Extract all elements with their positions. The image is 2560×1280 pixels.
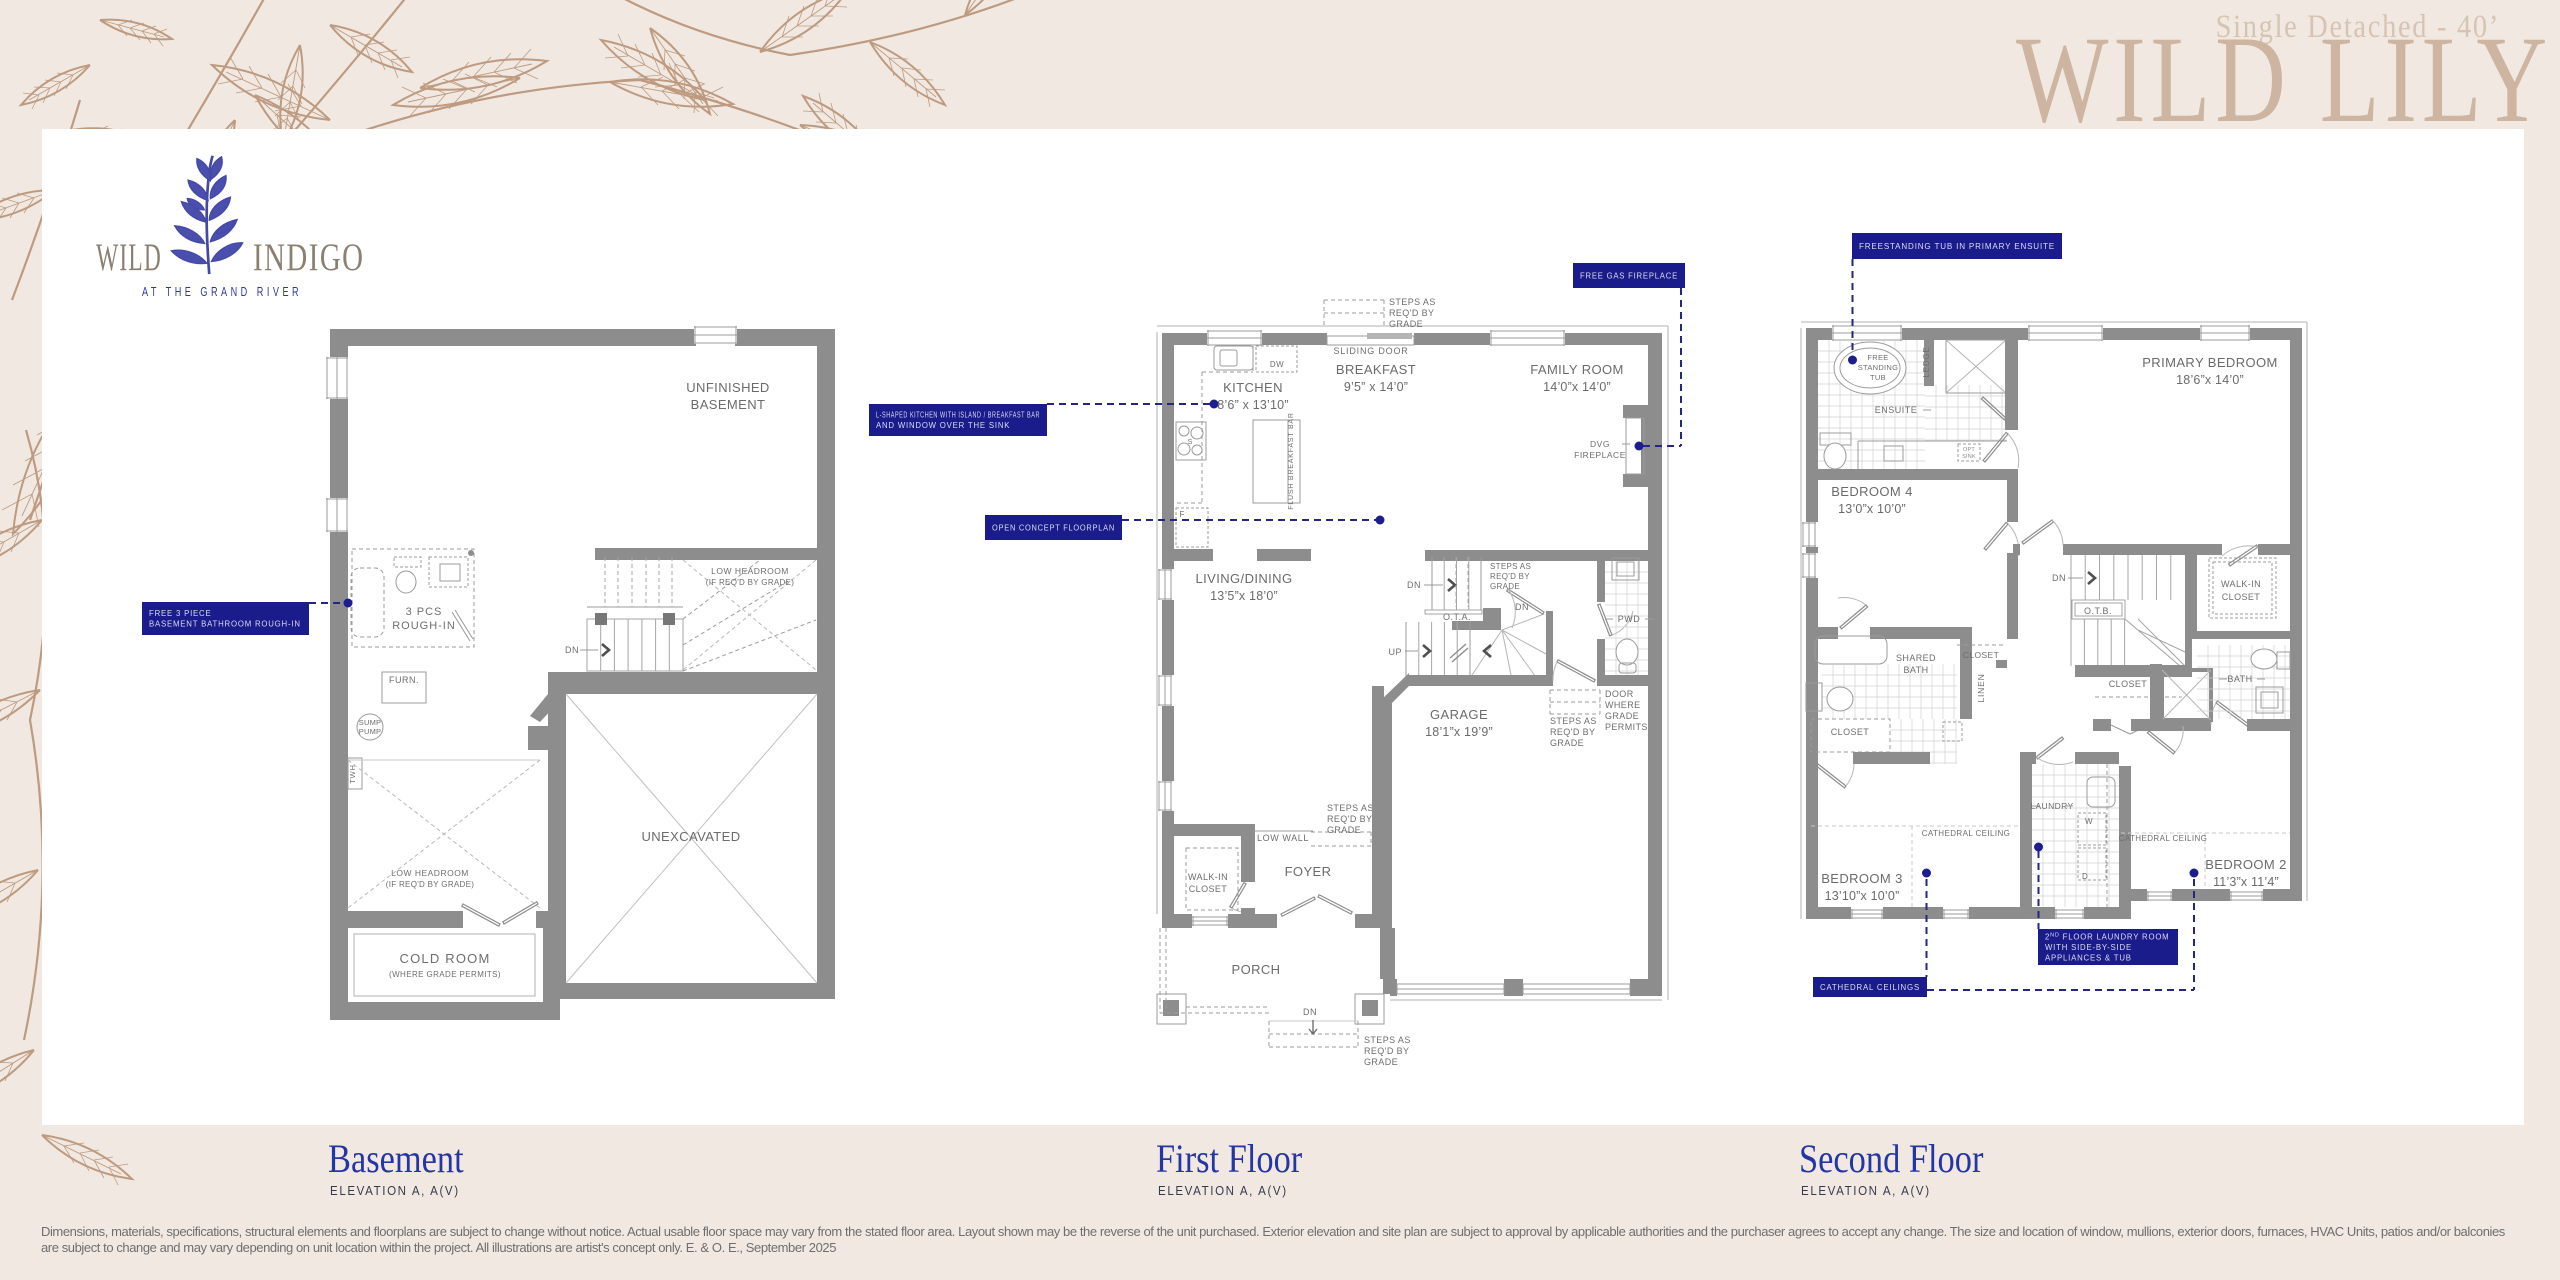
svg-text:FREE: FREE bbox=[1867, 353, 1888, 362]
svg-text:FREE GAS FIREPLACE: FREE GAS FIREPLACE bbox=[1580, 271, 1678, 280]
svg-text:DN: DN bbox=[1515, 602, 1529, 612]
svg-text:PRIMARY BEDROOM: PRIMARY BEDROOM bbox=[2142, 355, 2278, 370]
svg-text:DN: DN bbox=[1303, 1007, 1317, 1017]
svg-text:PORCH: PORCH bbox=[1232, 962, 1281, 977]
svg-text:PUMP: PUMP bbox=[359, 727, 381, 736]
svg-text:(IF REQ'D BY GRADE): (IF REQ'D BY GRADE) bbox=[386, 880, 474, 889]
svg-text:OPEN CONCEPT FLOORPLAN: OPEN CONCEPT FLOORPLAN bbox=[992, 523, 1115, 532]
svg-text:2ND FLOOR LAUNDRY ROOM: 2ND FLOOR LAUNDRY ROOM bbox=[2045, 932, 2169, 941]
svg-text:STANDING: STANDING bbox=[1858, 363, 1899, 372]
svg-text:LEDGE: LEDGE bbox=[1922, 346, 1931, 377]
svg-text:SUMP: SUMP bbox=[359, 718, 381, 727]
svg-text:KITCHEN: KITCHEN bbox=[1223, 380, 1283, 395]
svg-text:GRADE: GRADE bbox=[1490, 582, 1520, 591]
svg-text:BASEMENT BATHROOM ROUGH-IN: BASEMENT BATHROOM ROUGH-IN bbox=[149, 620, 301, 629]
svg-text:LOW HEADROOM: LOW HEADROOM bbox=[391, 868, 469, 878]
svg-text:CLOSET: CLOSET bbox=[2109, 679, 2148, 689]
svg-text:GRADE: GRADE bbox=[1550, 738, 1584, 748]
svg-text:W: W bbox=[2085, 817, 2093, 826]
svg-text:CATHEDRAL CEILING: CATHEDRAL CEILING bbox=[2119, 834, 2208, 843]
svg-text:UNFINISHED: UNFINISHED bbox=[686, 380, 769, 395]
svg-text:WALK-IN: WALK-IN bbox=[1188, 872, 1228, 882]
svg-text:13’0”x 10’0”: 13’0”x 10’0” bbox=[1838, 502, 1906, 516]
svg-text:FOYER: FOYER bbox=[1285, 864, 1332, 879]
svg-text:18’1”x 19’9”: 18’1”x 19’9” bbox=[1425, 725, 1493, 739]
svg-text:GRADE: GRADE bbox=[1605, 711, 1639, 721]
svg-text:REQ'D BY: REQ'D BY bbox=[1364, 1046, 1409, 1056]
svg-text:11’3”x 11’4”: 11’3”x 11’4” bbox=[2213, 875, 2279, 889]
svg-text:FIREPLACE: FIREPLACE bbox=[1574, 450, 1626, 460]
svg-text:(WHERE GRADE PERMITS): (WHERE GRADE PERMITS) bbox=[389, 970, 501, 979]
svg-text:DN: DN bbox=[1407, 580, 1421, 590]
svg-text:UP: UP bbox=[1388, 647, 1402, 657]
svg-text:GRADE: GRADE bbox=[1389, 319, 1423, 329]
svg-text:FAMILY ROOM: FAMILY ROOM bbox=[1530, 362, 1624, 377]
svg-text:GARAGE: GARAGE bbox=[1430, 707, 1488, 722]
svg-text:STEPS AS: STEPS AS bbox=[1389, 297, 1436, 307]
svg-text:STEPS AS: STEPS AS bbox=[1327, 803, 1374, 813]
svg-text:ENSUITE: ENSUITE bbox=[1875, 405, 1918, 415]
svg-text:O.T.B.: O.T.B. bbox=[2084, 606, 2112, 616]
svg-text:LOW HEADROOM: LOW HEADROOM bbox=[711, 566, 789, 576]
svg-text:FREESTANDING TUB IN PRIMARY EN: FREESTANDING TUB IN PRIMARY ENSUITE bbox=[1859, 242, 2055, 251]
svg-text:REQ'D BY: REQ'D BY bbox=[1490, 572, 1530, 581]
svg-text:9’5” x 14’0”: 9’5” x 14’0” bbox=[1344, 380, 1408, 394]
svg-text:13’5”x 18’0”: 13’5”x 18’0” bbox=[1210, 589, 1278, 603]
svg-text:DN: DN bbox=[565, 645, 579, 655]
svg-text:TWH: TWH bbox=[348, 764, 357, 783]
svg-text:D: D bbox=[2082, 872, 2088, 881]
svg-text:3 PCS: 3 PCS bbox=[406, 606, 443, 618]
svg-text:APPLIANCES & TUB: APPLIANCES & TUB bbox=[2045, 953, 2132, 962]
svg-text:GRADE: GRADE bbox=[1364, 1057, 1398, 1067]
svg-text:STEPS AS: STEPS AS bbox=[1490, 562, 1531, 571]
svg-text:CLOSET: CLOSET bbox=[1963, 650, 1999, 660]
svg-text:BEDROOM 2: BEDROOM 2 bbox=[2205, 857, 2287, 872]
svg-text:L-SHAPED KITCHEN WITH ISLAND /: L-SHAPED KITCHEN WITH ISLAND / BREAKFAST… bbox=[876, 411, 1040, 420]
svg-text:CATHEDRAL CEILING: CATHEDRAL CEILING bbox=[1922, 829, 2011, 838]
svg-text:WITH SIDE-BY-SIDE: WITH SIDE-BY-SIDE bbox=[2045, 943, 2132, 952]
svg-text:UNEXCAVATED: UNEXCAVATED bbox=[641, 829, 740, 844]
svg-text:DVG: DVG bbox=[1590, 439, 1610, 449]
svg-text:COLD ROOM: COLD ROOM bbox=[400, 951, 491, 966]
svg-text:CLOSET: CLOSET bbox=[1189, 884, 1228, 894]
svg-text:DW: DW bbox=[1270, 360, 1284, 369]
svg-text:GRADE: GRADE bbox=[1327, 825, 1361, 835]
svg-text:LOW WALL: LOW WALL bbox=[1257, 833, 1309, 843]
svg-text:BEDROOM 3: BEDROOM 3 bbox=[1821, 871, 1903, 886]
svg-text:TUB: TUB bbox=[1870, 373, 1886, 382]
svg-text:CLOSET: CLOSET bbox=[1831, 727, 1870, 737]
svg-text:FLUSH BREAKFAST BAR: FLUSH BREAKFAST BAR bbox=[1288, 412, 1295, 510]
svg-text:REQ'D BY: REQ'D BY bbox=[1327, 814, 1372, 824]
svg-text:CLOSET: CLOSET bbox=[2222, 592, 2261, 602]
svg-text:FREE 3 PIECE: FREE 3 PIECE bbox=[149, 609, 211, 618]
svg-text:BEDROOM 4: BEDROOM 4 bbox=[1831, 484, 1913, 499]
svg-text:8’6” x 13’10”: 8’6” x 13’10” bbox=[1217, 398, 1288, 412]
svg-text:DOOR: DOOR bbox=[1605, 689, 1634, 699]
svg-text:14’0”x 14’0”: 14’0”x 14’0” bbox=[1543, 380, 1611, 394]
svg-text:AND WINDOW OVER THE SINK: AND WINDOW OVER THE SINK bbox=[876, 421, 1010, 430]
svg-text:(IF REQ'D BY GRADE): (IF REQ'D BY GRADE) bbox=[706, 578, 794, 587]
svg-text:13’10”x 10’0”: 13’10”x 10’0” bbox=[1825, 889, 1900, 903]
svg-text:S: S bbox=[1188, 439, 1193, 446]
svg-text:ROUGH-IN: ROUGH-IN bbox=[392, 620, 456, 632]
svg-text:LINEN: LINEN bbox=[1976, 673, 1986, 702]
svg-text:BASEMENT: BASEMENT bbox=[691, 397, 766, 412]
svg-text:18’6”x 14’0”: 18’6”x 14’0” bbox=[2176, 373, 2244, 387]
svg-text:O.T.A.: O.T.A. bbox=[1443, 612, 1471, 622]
svg-text:OPT: OPT bbox=[1963, 447, 1975, 453]
svg-text:BREAKFAST: BREAKFAST bbox=[1336, 362, 1416, 377]
svg-text:SLIDING DOOR: SLIDING DOOR bbox=[1333, 346, 1408, 356]
svg-text:LIVING/DINING: LIVING/DINING bbox=[1196, 571, 1293, 586]
svg-text:CATHEDRAL CEILINGS: CATHEDRAL CEILINGS bbox=[1820, 983, 1920, 992]
svg-text:PWD: PWD bbox=[1618, 614, 1641, 624]
svg-text:STEPS AS: STEPS AS bbox=[1364, 1035, 1411, 1045]
svg-text:PERMITS: PERMITS bbox=[1605, 722, 1648, 732]
svg-text:BATH: BATH bbox=[1904, 665, 1929, 675]
svg-text:REQ'D BY: REQ'D BY bbox=[1389, 308, 1434, 318]
svg-text:SINK: SINK bbox=[1962, 454, 1976, 460]
svg-text:BATH: BATH bbox=[2227, 674, 2252, 684]
svg-text:F: F bbox=[1180, 510, 1185, 519]
svg-text:DN: DN bbox=[2052, 573, 2066, 583]
svg-text:WHERE: WHERE bbox=[1605, 700, 1641, 710]
svg-text:FURN.: FURN. bbox=[389, 675, 419, 685]
svg-text:REQ'D BY: REQ'D BY bbox=[1550, 727, 1595, 737]
svg-text:SHARED: SHARED bbox=[1896, 653, 1936, 663]
svg-text:WALK-IN: WALK-IN bbox=[2221, 579, 2261, 589]
svg-text:STEPS AS: STEPS AS bbox=[1550, 716, 1597, 726]
